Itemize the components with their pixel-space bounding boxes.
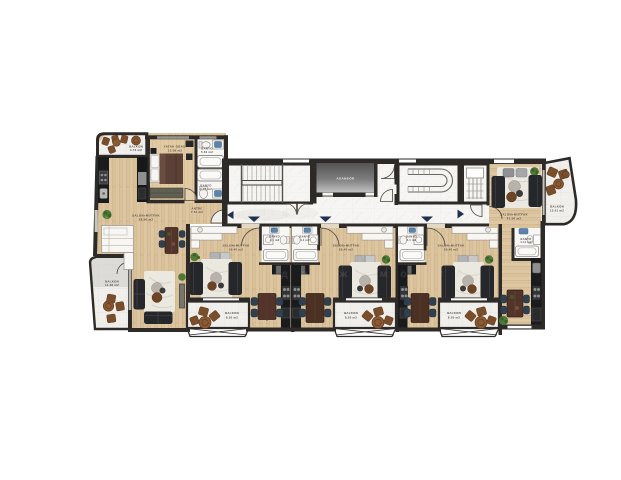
svg-text:BANYO: BANYO [521, 237, 532, 241]
svg-text:29.40 m2: 29.40 m2 [444, 247, 458, 251]
svg-text:7.61 m2: 7.61 m2 [191, 210, 203, 214]
svg-text:BANYO: BANYO [269, 235, 280, 239]
svg-text:4.76 m2: 4.76 m2 [200, 187, 212, 191]
svg-text:BALKON: BALKON [447, 311, 461, 315]
svg-text:недвижимость: недвижимость [243, 268, 476, 280]
svg-text:BALKON: BALKON [344, 311, 358, 315]
svg-text:ASANSÖR: ASANSÖR [336, 177, 355, 181]
svg-text:13.08 m2: 13.08 m2 [168, 148, 183, 152]
svg-text:BANYO: BANYO [300, 235, 311, 239]
svg-text:BALKON: BALKON [225, 311, 239, 315]
svg-text:4.1 m2: 4.1 m2 [407, 238, 417, 242]
svg-text:4.1 m2: 4.1 m2 [270, 238, 280, 242]
svg-text:29.40 m2: 29.40 m2 [339, 247, 353, 251]
svg-text:13.01 m2: 13.01 m2 [550, 208, 564, 212]
svg-text:4.11 m2: 4.11 m2 [520, 240, 532, 244]
svg-text:11.38 m2: 11.38 m2 [105, 283, 119, 287]
svg-text:41.00 m2: 41.00 m2 [507, 216, 522, 220]
svg-text:4.73 m2: 4.73 m2 [130, 148, 142, 152]
svg-text:28.90 m2: 28.90 m2 [139, 218, 154, 222]
svg-text:5.64 m2: 5.64 m2 [201, 150, 213, 154]
svg-text:BANYO: BANYO [406, 235, 417, 239]
svg-text:8.20 m2: 8.20 m2 [226, 315, 238, 319]
svg-text:4.1 m2: 4.1 m2 [300, 238, 310, 242]
svg-text:8.20 m2: 8.20 m2 [345, 315, 357, 319]
svg-text:29.40 m2: 29.40 m2 [229, 247, 243, 251]
svg-text:8.20 m2: 8.20 m2 [448, 315, 460, 319]
